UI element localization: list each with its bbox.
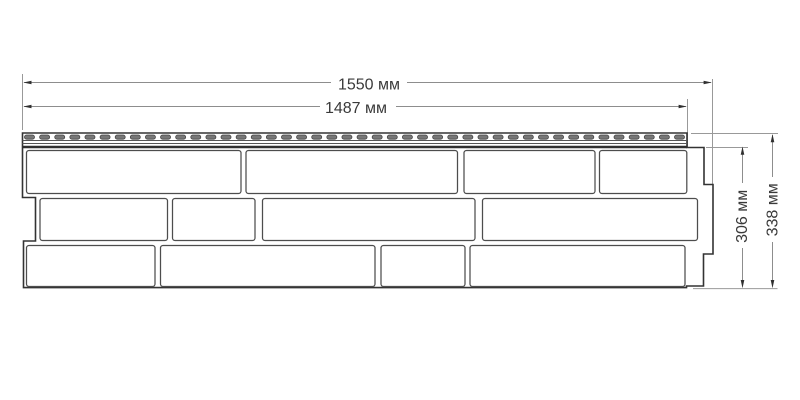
svg-text:1487 мм: 1487 мм [325,100,387,117]
svg-text:1550 мм: 1550 мм [338,76,400,93]
svg-text:338 мм: 338 мм [765,183,782,236]
svg-text:306 мм: 306 мм [734,190,751,243]
